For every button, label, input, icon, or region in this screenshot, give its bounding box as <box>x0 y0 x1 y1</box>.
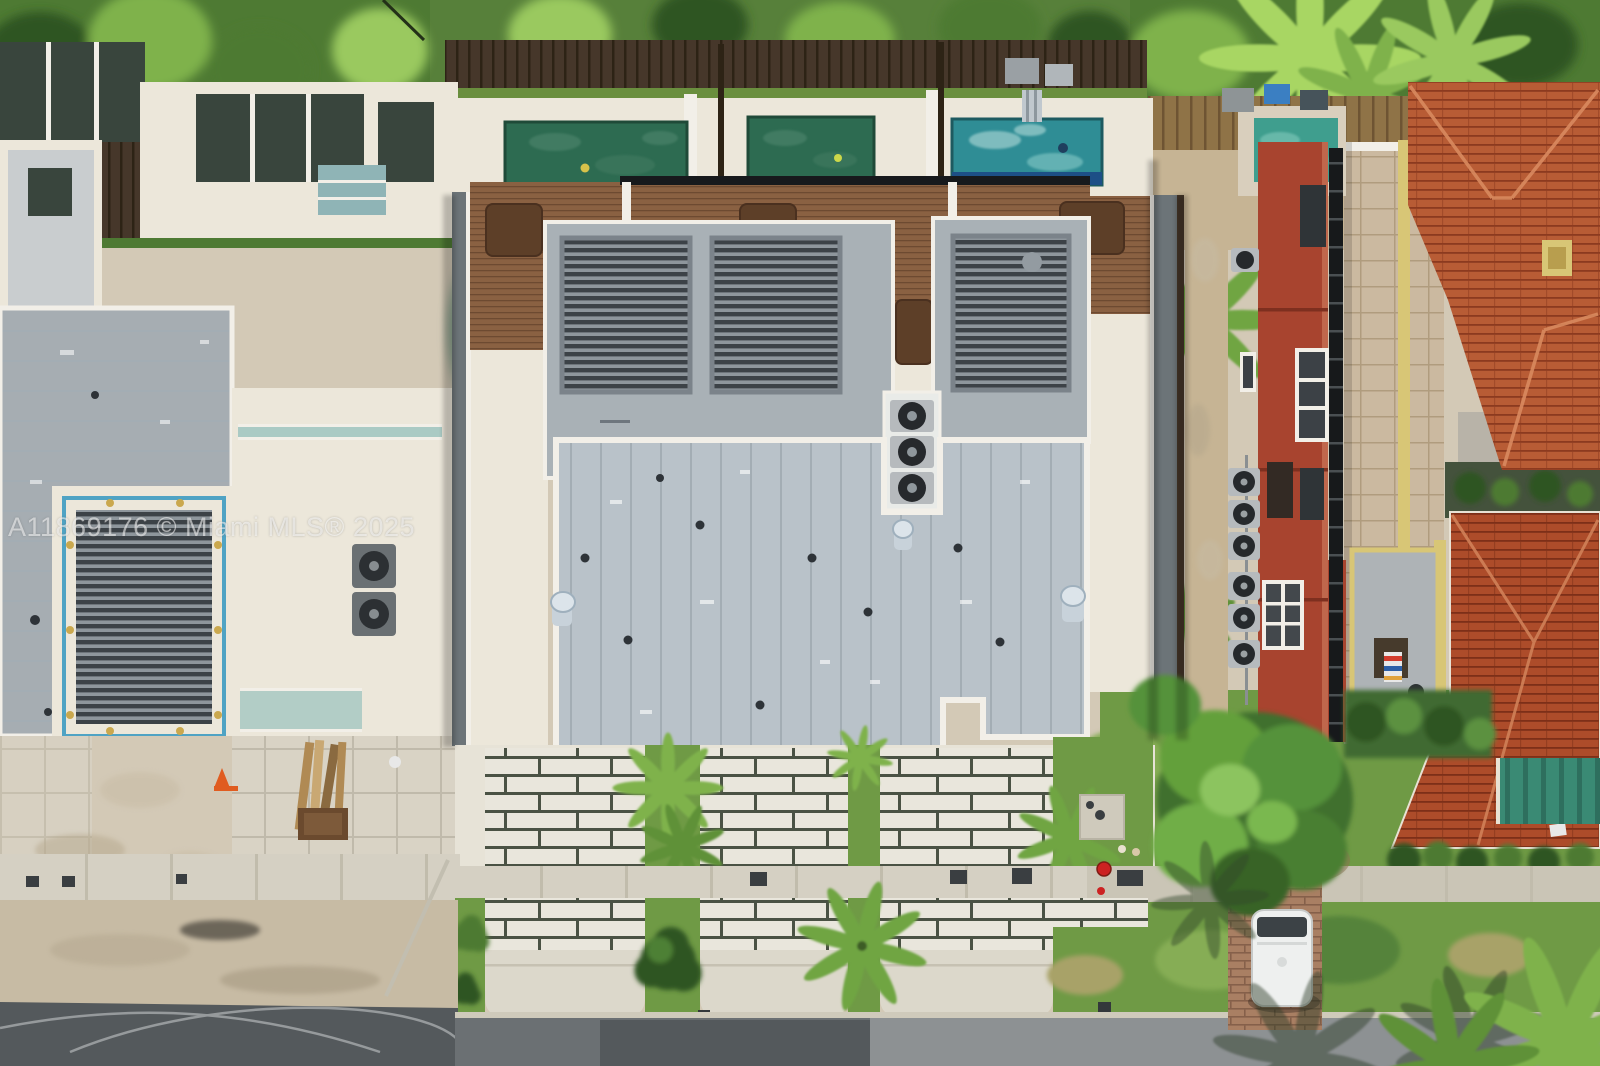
roof-ac-fans <box>884 392 940 510</box>
aerial-photo: A11869176 © Miami MLS® 2025 <box>0 0 1600 1066</box>
deck-railing <box>620 176 1090 185</box>
hedge-mid <box>1344 690 1496 758</box>
louver-panel-1 <box>562 238 690 392</box>
left-terrace <box>232 388 458 736</box>
right-unit-roof-slab <box>933 218 1089 442</box>
stairwell-glass <box>240 688 362 732</box>
pool-2-green <box>748 117 874 181</box>
stair-strip <box>1329 148 1343 742</box>
pool-3-teal <box>952 119 1102 185</box>
paver-panel <box>485 748 645 868</box>
mls-watermark: A11869176 © Miami MLS® 2025 <box>8 512 415 543</box>
teal-awning <box>1496 758 1600 824</box>
main-metal-roof <box>551 440 1087 748</box>
louver-panel-3 <box>953 236 1069 390</box>
backyard-fence <box>445 40 1147 96</box>
paver-panel <box>700 748 848 868</box>
left-property <box>0 42 458 908</box>
beach-towel <box>1384 652 1402 682</box>
stair-skylight <box>318 165 386 215</box>
roof-skylight <box>1549 823 1567 837</box>
pool-float <box>581 164 590 173</box>
van-windshield <box>1257 917 1307 937</box>
center-duplex <box>452 42 1177 748</box>
blue-tarp <box>1264 84 1290 104</box>
louver-panel-2 <box>712 238 840 392</box>
driveway-apron <box>485 950 645 1016</box>
left-glass-roof <box>0 42 145 142</box>
